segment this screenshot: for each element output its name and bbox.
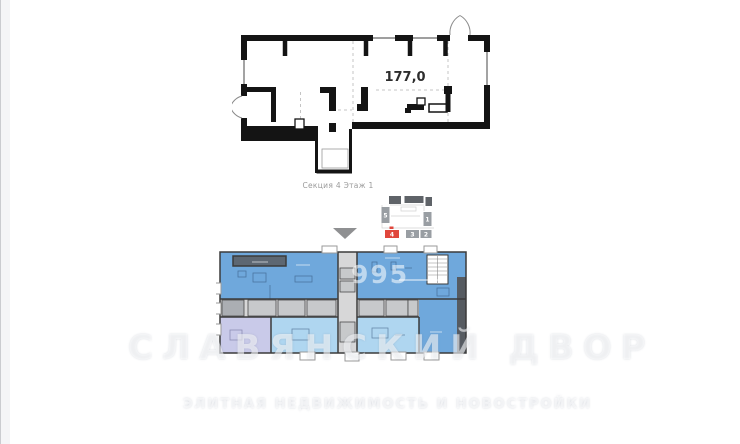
- site-buildings: [389, 196, 432, 206]
- mini-map-section-5[interactable]: 5: [382, 207, 390, 223]
- pointer-arrow-down-icon: [333, 228, 357, 239]
- mini-map-section-4-selected[interactable]: 4: [385, 230, 399, 239]
- mini-map-section-3[interactable]: 3: [406, 230, 419, 239]
- section-3-label: 3: [410, 232, 414, 239]
- mini-map-section-1[interactable]: 1: [424, 212, 432, 226]
- section-5-label: 5: [383, 213, 387, 220]
- interior-wall-stubs: [285, 41, 446, 56]
- section-2-label: 2: [424, 232, 428, 239]
- bottom-left-wall-band: [241, 126, 318, 141]
- building-floor-plan: [216, 244, 472, 368]
- unit-lavender: [220, 317, 271, 353]
- site-mini-map: 5 1 4 3 2: [377, 193, 435, 240]
- detail-floor-plan: 177,0: [232, 12, 492, 178]
- door-arcs: [232, 16, 470, 119]
- area-label: 177,0: [384, 70, 425, 85]
- section-1-label: 1: [425, 217, 429, 224]
- section-4-label: 4: [390, 232, 394, 239]
- terrace-dark: [233, 256, 286, 266]
- unit-left-bottom-light: [271, 317, 338, 353]
- watermark-dash: [399, 279, 439, 281]
- mini-map-section-2[interactable]: 2: [421, 230, 432, 239]
- watermark-subtitle: ЭЛИТНАЯ НЕДВИЖИМОСТЬ И НОВОСТРОЙКИ: [183, 397, 592, 412]
- selected-section-marker: [390, 227, 394, 230]
- page-edge-shading: [1, 0, 10, 444]
- section-floor-caption: Секция 4 Этаж 1: [300, 181, 376, 190]
- zone-divider-dashes: [301, 41, 449, 125]
- right-dark-strip: [457, 277, 466, 353]
